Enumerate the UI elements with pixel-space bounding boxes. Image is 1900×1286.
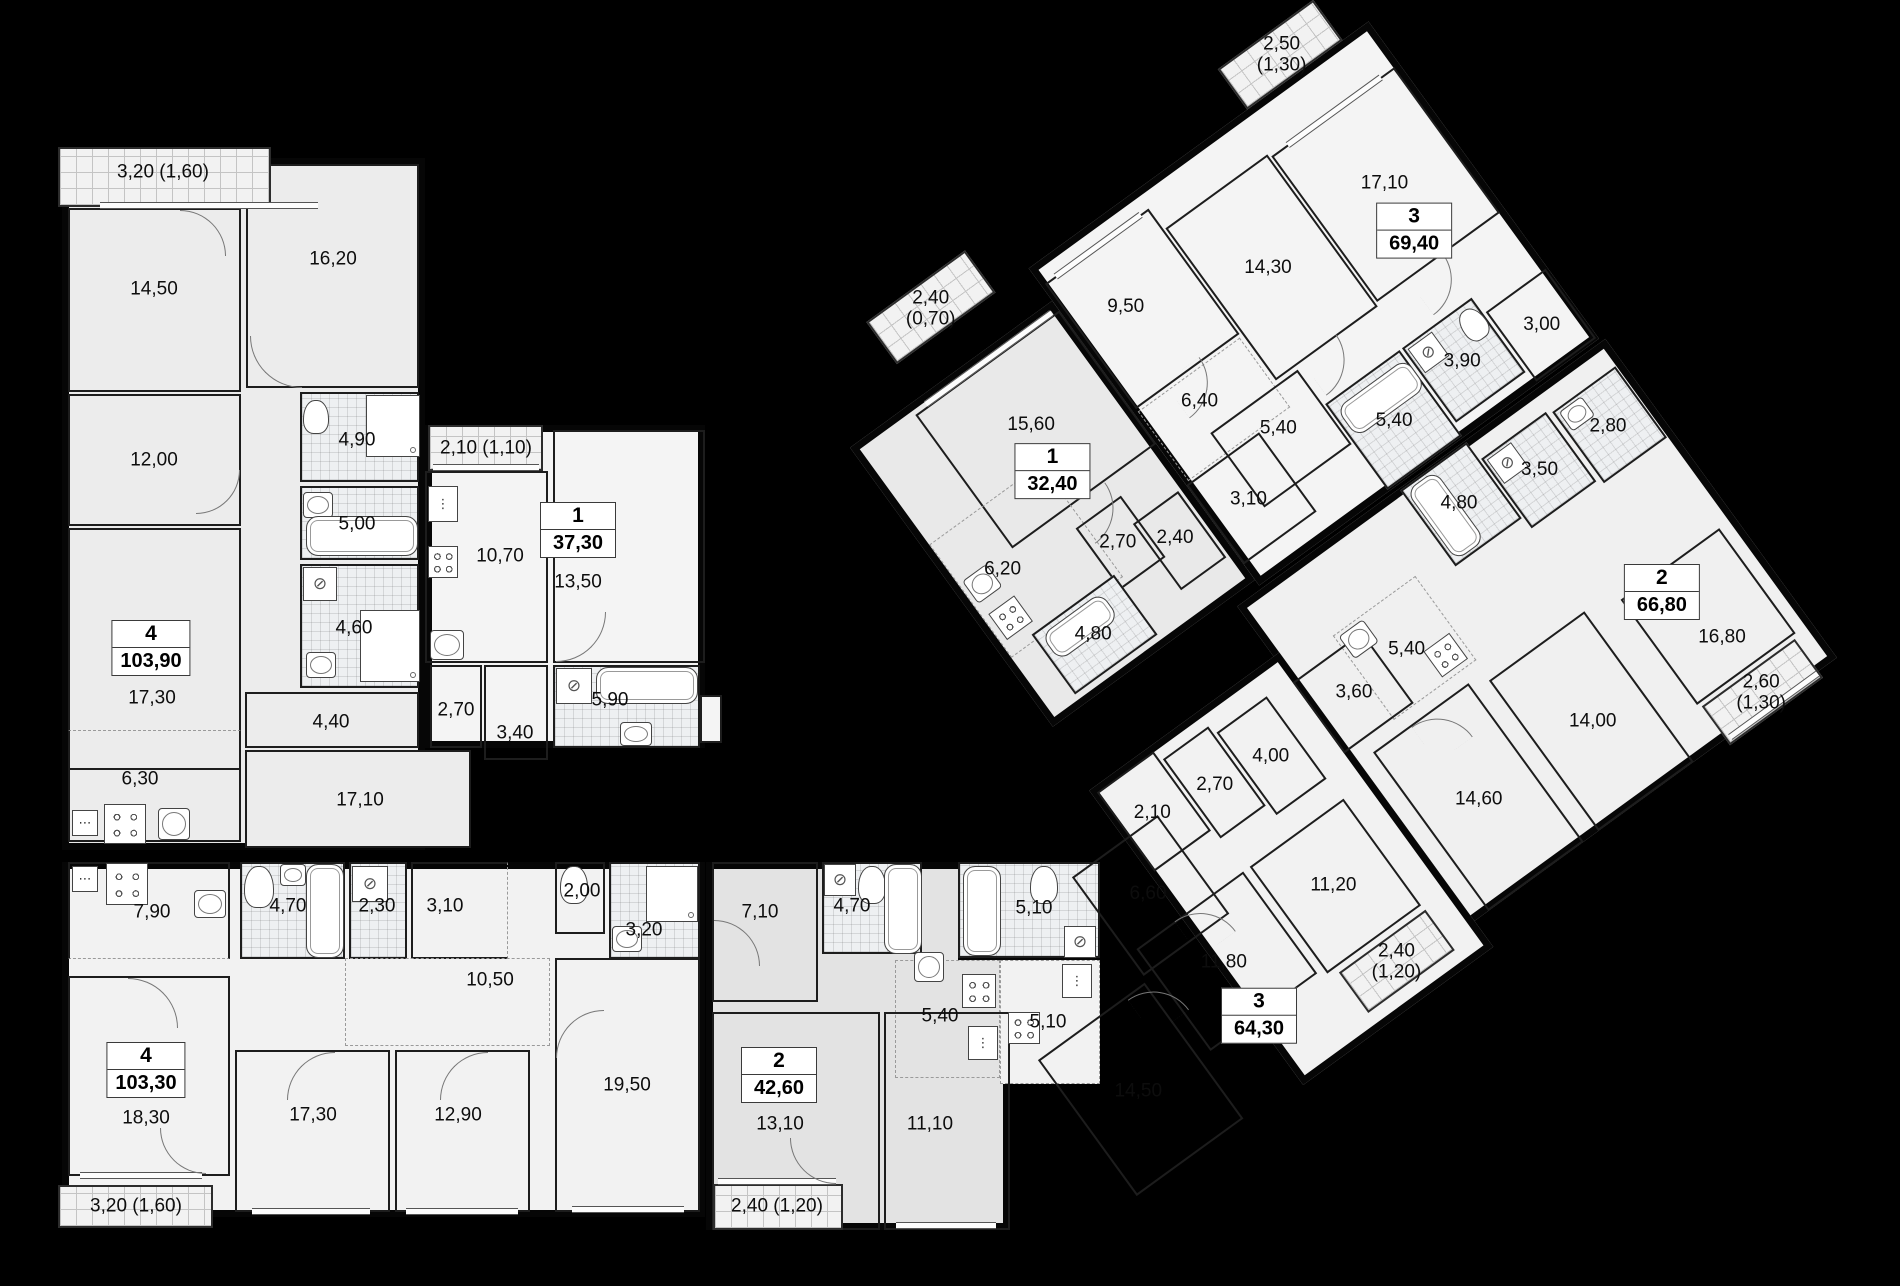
fridge-icon: ⋮: [428, 486, 458, 522]
room-area-label: 19,50: [603, 1074, 651, 1095]
fridge-icon: ⋮: [968, 1026, 998, 1060]
window: [80, 1172, 202, 1179]
window: [572, 1206, 684, 1213]
sink-icon: [280, 864, 306, 886]
room-area-label: 5,00: [339, 513, 376, 534]
apartment-badge: 3 64,30: [1221, 988, 1297, 1044]
apartment-area: 64,30: [1222, 1016, 1296, 1043]
apartment-rooms-count: 3: [1222, 989, 1296, 1016]
apartment-rooms-count: 4: [112, 621, 189, 648]
balcony-area-label: 2,40 (0,70): [892, 287, 970, 330]
room-area-label: 14,60: [1455, 789, 1503, 810]
room-area-label: 5,40: [1260, 418, 1297, 439]
floor-plan: ⊘ ⊘ 2,40 (0,70) 15,60 6,20 2,70 2,40 4,8…: [0, 0, 1900, 1286]
room-area-label: 13,10: [756, 1113, 804, 1134]
sink-icon: [303, 492, 333, 518]
room-area-label: 2,30: [359, 895, 396, 916]
apartment-badge: 2 66,80: [1624, 564, 1700, 620]
room-area-label: 11,20: [1310, 874, 1356, 895]
balcony-area-label: 2,40 (1,20): [1357, 940, 1435, 983]
balcony-area-label: 3,20 (1,60): [117, 161, 209, 182]
apartment-badge: 2 42,60: [741, 1047, 817, 1103]
room-area-label: 16,20: [309, 248, 357, 269]
room-area-label: 6,30: [122, 768, 159, 789]
balcony-area-label: 2,60 (1,30): [1722, 672, 1800, 715]
apartment-badge: 4 103,30: [106, 1042, 185, 1098]
room-area-label: 15,60: [1007, 414, 1055, 435]
room-area-label: 11,80: [1201, 952, 1247, 973]
apartment-rooms-count: 1: [541, 503, 615, 530]
room-area-label: 5,10: [1016, 897, 1053, 918]
washing-machine-icon: ⊘: [303, 567, 337, 601]
apartment-badge: 1 37,30: [540, 502, 616, 558]
room-area-label: 2,10: [1134, 802, 1171, 823]
room-area-label: 14,00: [1569, 711, 1617, 732]
apartment-badge: 1 32,40: [1014, 443, 1090, 499]
balcony-area-label: 2,40 (1,20): [731, 1195, 823, 1216]
window: [100, 202, 318, 209]
room-area-label: 2,70: [1099, 532, 1136, 553]
room-area-label: 17,10: [336, 789, 384, 810]
room-area-label: 4,90: [339, 429, 376, 450]
room-area-label: 5,40: [1388, 638, 1425, 659]
apartment-area: 103,90: [112, 648, 189, 675]
room-area-label: 9,50: [1107, 296, 1144, 317]
balcony-area-label: 2,10 (1,10): [440, 437, 532, 458]
room-area-label: 3,00: [1523, 314, 1560, 335]
room-area-label: 17,30: [128, 687, 176, 708]
stove-icon: [104, 804, 146, 844]
room-area-label: 11,10: [907, 1113, 953, 1134]
room-area-label: 3,60: [1335, 682, 1372, 703]
toilet-icon: [303, 400, 329, 434]
room-area-label: 17,10: [1361, 172, 1409, 193]
washing-machine-icon: ⊘: [556, 668, 592, 704]
room-area-label: 3,50: [1521, 459, 1558, 480]
washing-machine-icon: ⊘: [824, 864, 856, 896]
room-area-label: 7,10: [742, 901, 779, 922]
meter-icon: ⋯: [72, 866, 98, 892]
room-area-label: 16,80: [1698, 627, 1746, 648]
room-area-label: 18,30: [122, 1107, 170, 1128]
room-area-label: 4,80: [1441, 493, 1478, 514]
apartment-badge: 3 69,40: [1376, 203, 1452, 259]
apartment-area: 69,40: [1377, 231, 1451, 258]
room-area-label: 10,50: [466, 969, 514, 990]
room-area-label: 2,40: [1157, 527, 1194, 548]
room-area-label: 2,70: [1196, 774, 1233, 795]
room-area-label: 12,00: [130, 449, 178, 470]
bathtub-icon: [963, 866, 1001, 956]
room-area-label: 4,60: [336, 617, 373, 638]
room-area-label: 6,20: [984, 559, 1021, 580]
hallway: [345, 958, 550, 1046]
sink-icon: [914, 952, 944, 982]
room-area-label: 2,80: [1590, 415, 1627, 436]
room-area-label: 5,40: [1376, 410, 1413, 431]
room-area-label: 4,00: [1252, 746, 1289, 767]
room-area-label: 14,50: [1114, 1080, 1162, 1101]
room-area-label: 10,70: [476, 545, 524, 566]
apartment-area: 66,80: [1625, 592, 1699, 619]
room-area-label: 4,70: [834, 895, 871, 916]
room-area-label: 3,10: [1230, 489, 1267, 510]
apartment-rooms-count: 3: [1377, 204, 1451, 231]
apartment-area: 42,60: [742, 1075, 816, 1102]
room-area-label: 14,30: [1244, 257, 1292, 278]
balcony-area-label: 2,50 (1,30): [1243, 34, 1321, 77]
meter-icon: ⋯: [72, 810, 98, 836]
room-area-label: 5,10: [1030, 1011, 1067, 1032]
sink-icon: [620, 722, 652, 746]
room-area-label: 2,00: [564, 880, 601, 901]
room-area-label: 17,30: [289, 1104, 337, 1125]
room-area-label: 6,60: [1130, 883, 1167, 904]
hallway: [484, 665, 548, 760]
sink-icon: [158, 808, 190, 840]
sink-icon: [430, 630, 464, 660]
bathtub-icon: [306, 864, 344, 958]
window: [433, 464, 539, 471]
room-area-label: 12,90: [434, 1104, 482, 1125]
washing-machine-icon: ⊘: [1064, 926, 1096, 958]
room-area-label: 3,10: [427, 895, 464, 916]
apartment-area: 37,30: [541, 530, 615, 557]
bathtub-icon: [884, 864, 922, 954]
room-area-label: 4,40: [313, 711, 350, 732]
window: [896, 1222, 996, 1229]
room-area-label: 7,90: [134, 901, 171, 922]
room-area-label: 4,70: [270, 895, 307, 916]
apartment-badge: 4 103,90: [111, 620, 190, 676]
room-area-label: 13,50: [554, 571, 602, 592]
room-area-label: 4,80: [1075, 624, 1112, 645]
window: [406, 1208, 518, 1215]
shower-icon: [646, 866, 698, 922]
room-area-label: 3,20: [626, 919, 663, 940]
room-area-label: 2,70: [438, 699, 475, 720]
apartment-area: 103,30: [107, 1070, 184, 1097]
room-area-label: 6,40: [1181, 391, 1218, 412]
room-area-label: 14,50: [130, 278, 178, 299]
sink-icon: [194, 890, 226, 918]
room-area-label: 3,90: [1444, 351, 1481, 372]
apartment-rooms-count: 4: [107, 1043, 184, 1070]
stove-icon: [428, 546, 458, 578]
sink-icon: [306, 652, 336, 678]
apartment-rooms-count: 2: [742, 1048, 816, 1075]
room-area-label: 3,40: [497, 722, 534, 743]
apartment-rooms-count: 1: [1015, 444, 1089, 471]
room-area-label: 5,90: [592, 689, 629, 710]
apartment-area: 32,40: [1015, 471, 1089, 498]
room-area-label: 5,40: [922, 1005, 959, 1026]
duct: [700, 695, 722, 743]
stove-icon: [106, 863, 148, 905]
stove-icon: [962, 974, 996, 1008]
apartment-rooms-count: 2: [1625, 565, 1699, 592]
balcony-area-label: 3,20 (1,60): [90, 1195, 182, 1216]
window: [252, 1208, 370, 1215]
fridge-icon: ⋮: [1062, 964, 1092, 998]
